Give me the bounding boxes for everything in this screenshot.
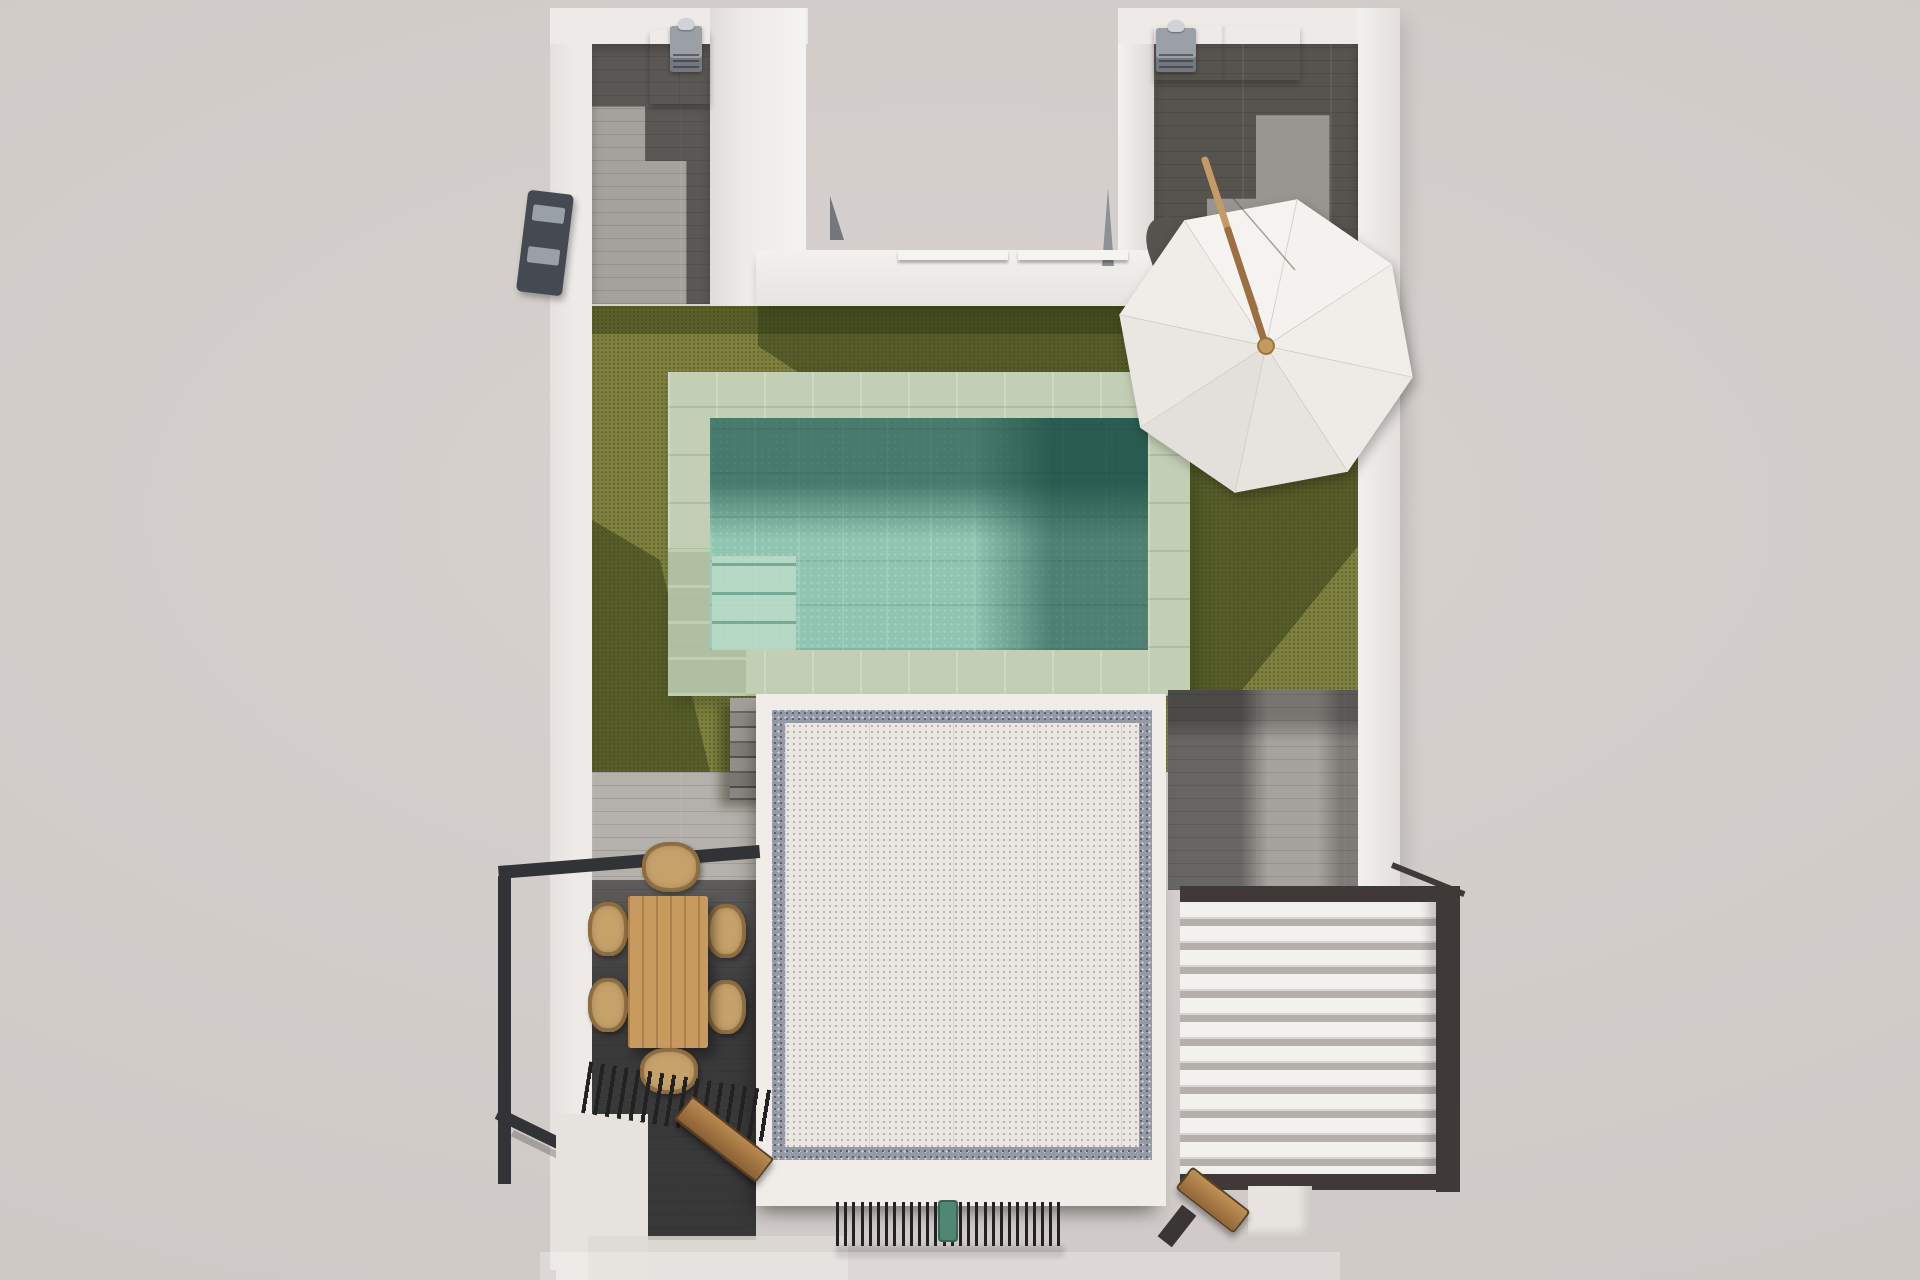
gravel-deck bbox=[756, 694, 1166, 1206]
grill-chimney-dome bbox=[678, 18, 694, 30]
dining-table bbox=[628, 896, 708, 1048]
render-canvas bbox=[0, 0, 1920, 1280]
pergola-frame-top bbox=[1180, 886, 1460, 902]
grill-grille-lines bbox=[1159, 52, 1193, 68]
wall-unit-panel bbox=[532, 204, 566, 224]
teal-object bbox=[938, 1200, 958, 1242]
balustrade-left bbox=[498, 876, 511, 1184]
dining-chair bbox=[706, 980, 746, 1034]
gravel-deck-border bbox=[772, 710, 1152, 1160]
pergola-louvers bbox=[1180, 902, 1436, 1174]
grill-chimney-dome bbox=[1168, 20, 1184, 32]
louvered-pergola bbox=[1168, 860, 1464, 1192]
grill-grille-lines bbox=[673, 52, 699, 68]
pergola-frame-right bbox=[1436, 886, 1460, 1192]
parasol bbox=[1090, 120, 1430, 520]
dining-chair bbox=[588, 978, 628, 1032]
wall-unit-panel bbox=[527, 246, 561, 266]
dining-chair bbox=[642, 842, 700, 892]
grill-unit-icon bbox=[1156, 28, 1196, 72]
corner-bench-leg bbox=[1158, 1205, 1197, 1248]
door-sill bbox=[898, 250, 1008, 260]
parasol-hub bbox=[1258, 338, 1274, 354]
lightwell-shadow-mark bbox=[830, 196, 844, 240]
dining-chair bbox=[706, 904, 746, 958]
pergola-frame-bottom bbox=[1180, 1174, 1460, 1190]
bottom-light-wash bbox=[540, 1252, 1340, 1280]
grill-unit-icon bbox=[670, 26, 702, 72]
gravel-deck-surface bbox=[785, 723, 1139, 1147]
pool-entry-steps bbox=[712, 556, 796, 650]
dining-chair bbox=[588, 902, 628, 956]
pool-water bbox=[710, 418, 1148, 650]
corner-step-block bbox=[1248, 1186, 1312, 1240]
